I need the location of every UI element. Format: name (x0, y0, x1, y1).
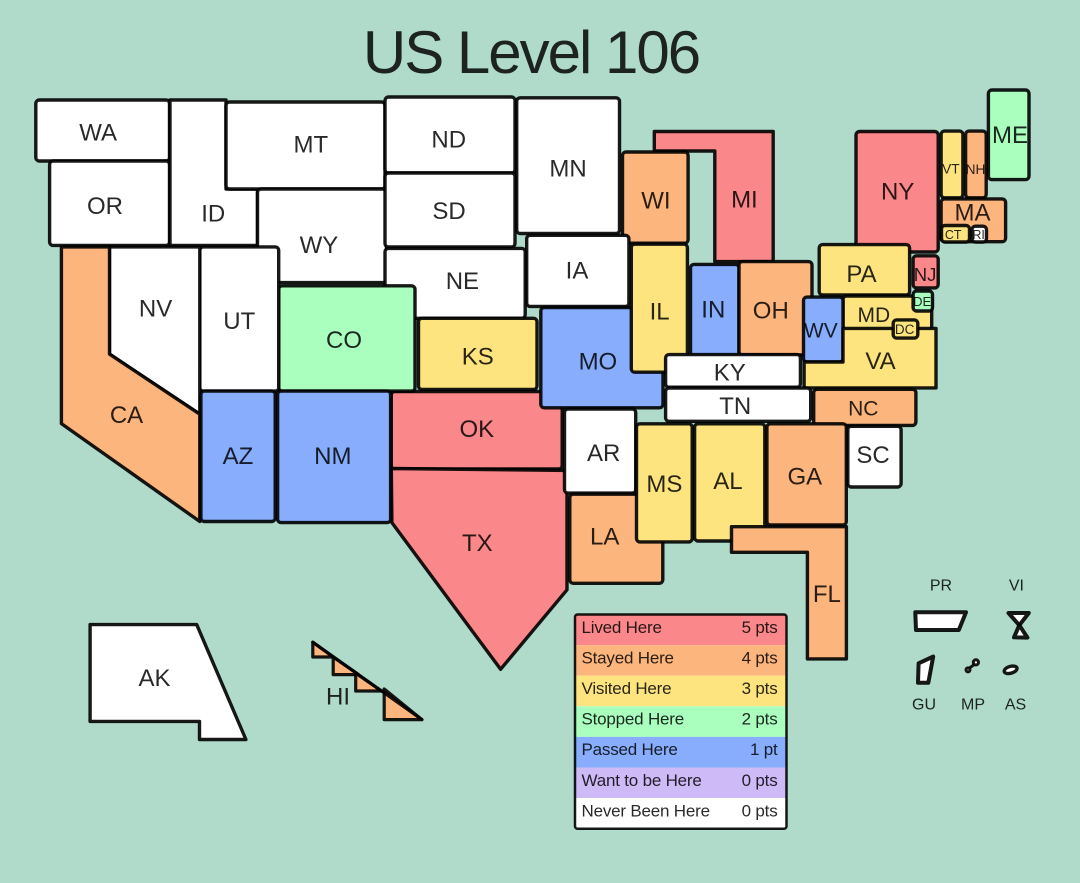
svg-text:DE: DE (913, 294, 932, 309)
svg-text:0 pts: 0 pts (742, 771, 778, 790)
svg-text:Stayed Here: Stayed Here (582, 648, 674, 667)
svg-text:Never Been Here: Never Been Here (582, 801, 710, 820)
svg-text:TN: TN (719, 393, 751, 420)
svg-text:IN: IN (701, 297, 725, 324)
svg-text:ME: ME (992, 122, 1028, 149)
svg-text:CA: CA (110, 402, 143, 429)
svg-text:OK: OK (459, 416, 494, 443)
svg-text:MN: MN (549, 155, 586, 182)
svg-text:ND: ND (431, 127, 466, 154)
svg-text:UT: UT (223, 308, 255, 335)
svg-text:MT: MT (293, 132, 328, 159)
svg-text:MP: MP (961, 697, 985, 714)
svg-text:MD: MD (857, 304, 890, 327)
svg-text:4 pts: 4 pts (742, 648, 778, 667)
svg-text:CO: CO (326, 327, 362, 354)
svg-text:WI: WI (641, 188, 670, 215)
svg-text:NV: NV (139, 296, 172, 323)
svg-text:NJ: NJ (914, 264, 937, 285)
svg-text:2 pts: 2 pts (742, 710, 778, 729)
svg-text:WY: WY (300, 232, 339, 259)
svg-text:Visited Here: Visited Here (582, 679, 672, 698)
svg-text:SD: SD (432, 198, 465, 225)
svg-text:VT: VT (942, 161, 960, 176)
svg-text:TX: TX (462, 530, 493, 557)
svg-text:IL: IL (650, 299, 670, 326)
svg-text:AR: AR (587, 440, 620, 467)
svg-text:Want to be Here: Want to be Here (582, 771, 702, 790)
svg-text:OH: OH (753, 297, 789, 324)
svg-text:WA: WA (79, 119, 117, 146)
svg-text:NM: NM (314, 443, 351, 470)
svg-text:FL: FL (813, 581, 841, 608)
svg-text:DC: DC (895, 322, 915, 337)
svg-text:NY: NY (881, 178, 914, 205)
svg-text:NC: NC (848, 398, 878, 421)
svg-text:NH: NH (966, 162, 986, 177)
svg-text:MI: MI (731, 186, 758, 213)
svg-text:WV: WV (804, 319, 838, 342)
svg-text:NE: NE (446, 268, 479, 295)
svg-text:OR: OR (87, 193, 123, 220)
svg-text:HI: HI (326, 684, 350, 711)
svg-text:IA: IA (566, 257, 589, 284)
svg-text:1 pt: 1 pt (750, 740, 778, 759)
svg-text:Stopped Here: Stopped Here (582, 710, 685, 729)
svg-text:GA: GA (787, 464, 822, 491)
svg-text:AS: AS (1005, 697, 1026, 714)
svg-text:PR: PR (930, 577, 952, 594)
svg-text:0 pts: 0 pts (742, 801, 778, 820)
svg-text:CT: CT (945, 228, 962, 242)
svg-text:KS: KS (462, 343, 494, 370)
svg-text:GU: GU (912, 697, 936, 714)
svg-text:5 pts: 5 pts (742, 618, 778, 637)
svg-text:KY: KY (714, 360, 746, 387)
svg-text:PA: PA (846, 261, 876, 288)
svg-text:3 pts: 3 pts (742, 679, 778, 698)
svg-text:VI: VI (1009, 577, 1024, 594)
svg-text:Lived Here: Lived Here (582, 618, 662, 637)
svg-text:US Level 106: US Level 106 (363, 19, 699, 86)
svg-text:VA: VA (865, 348, 895, 375)
svg-text:MA: MA (955, 199, 991, 226)
svg-text:AL: AL (713, 468, 742, 495)
svg-text:Passed Here: Passed Here (582, 740, 678, 759)
svg-text:LA: LA (590, 524, 619, 551)
svg-text:MO: MO (579, 349, 618, 376)
svg-text:AK: AK (138, 665, 170, 692)
svg-text:RI: RI (972, 228, 985, 242)
svg-text:ID: ID (201, 201, 225, 228)
svg-text:MS: MS (646, 471, 682, 498)
svg-text:SC: SC (856, 442, 889, 469)
svg-text:AZ: AZ (223, 443, 254, 470)
